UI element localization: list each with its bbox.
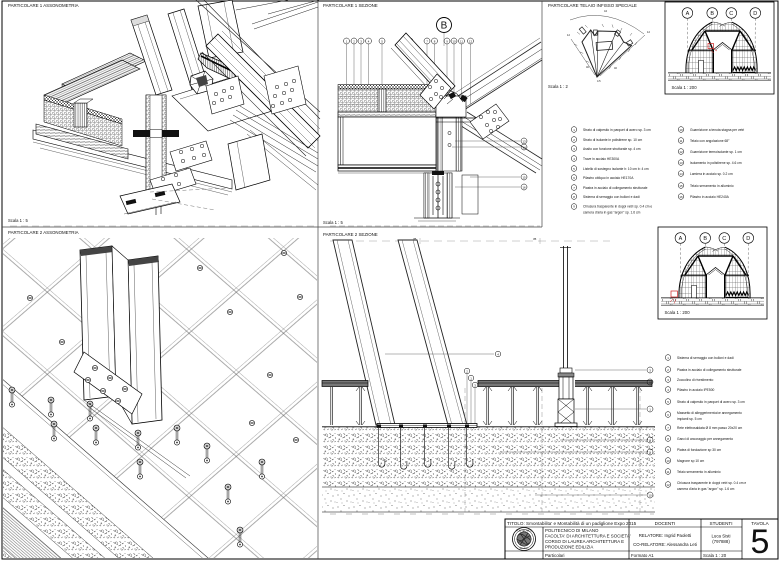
svg-text:12: 12: [469, 39, 473, 43]
svg-text:Scala 1 : 20: Scala 1 : 20: [703, 553, 727, 558]
svg-text:Chiusura trasparente in doppi: Chiusura trasparente in doppi vetri sp. …: [677, 481, 746, 485]
svg-text:Telaio serramento in alluminio: Telaio serramento in alluminio: [677, 470, 721, 474]
svg-text:DOCENTI: DOCENTI: [655, 521, 676, 526]
svg-text:10: 10: [648, 493, 652, 497]
svg-text:Formato A1: Formato A1: [631, 553, 654, 558]
svg-text:Scala 1 : 2: Scala 1 : 2: [548, 84, 568, 89]
svg-text:11: 11: [666, 470, 669, 474]
svg-text:PARTICOLARE 1 SEZIONE: PARTICOLARE 1 SEZIONE: [323, 3, 378, 8]
svg-text:10: 10: [666, 459, 670, 463]
svg-text:Platea di fondazione sp 30 cm: Platea di fondazione sp 30 cm: [677, 448, 721, 452]
svg-text:12: 12: [666, 483, 670, 487]
svg-text:STUDENTI: STUDENTI: [710, 521, 733, 526]
svg-text:Guarnizione a tenuta stagna pe: Guarnizione a tenuta stagna per vetri: [690, 128, 745, 132]
svg-text:Trave in acciaio HE300A: Trave in acciaio HE300A: [583, 157, 620, 161]
svg-text:Guarnizione termoisolante sp.: Guarnizione termoisolante sp. 1 cm: [690, 150, 742, 154]
svg-text:35: 35: [533, 237, 537, 241]
svg-text:camera d'aria in gas "argon" s: camera d'aria in gas "argon" sp. 1.6 cm: [583, 211, 641, 215]
svg-text:16: 16: [522, 185, 526, 189]
svg-text:PARTICOLARE TELAIO INFISSO SPE: PARTICOLARE TELAIO INFISSO SPECIALE: [548, 3, 637, 8]
svg-text:Piastra in acciaio di collegam: Piastra in acciaio di collegamento strut…: [583, 186, 648, 190]
svg-text:Scala 1 : 5: Scala 1 : 5: [323, 220, 343, 225]
svg-text:Massetto di alleggerimento/ce: Massetto di alleggerimento/ce annegament…: [677, 411, 742, 415]
svg-text:PARTICOLARE 2 SEZIONE: PARTICOLARE 2 SEZIONE: [323, 232, 378, 237]
svg-text:12: 12: [679, 150, 683, 154]
svg-text:16: 16: [679, 195, 683, 199]
svg-text:Chiusura trasparente in doppi: Chiusura trasparente in doppi vetri sp. …: [583, 205, 652, 209]
svg-text:PARTICOLARE 2 ASSONOMETRIA: PARTICOLARE 2 ASSONOMETRIA: [8, 230, 79, 235]
svg-text:Scala 1 : 5: Scala 1 : 5: [8, 218, 28, 223]
svg-text:FACOLTA' DI ARCHITETTURA E SOC: FACOLTA' DI ARCHITETTURA E SOCIETA': [545, 534, 631, 539]
svg-text:Lamiera in acciaio sp. 0.2 cm: Lamiera in acciaio sp. 0.2 cm: [690, 172, 733, 176]
svg-text:Sistema di serraggio con bullo: Sistema di serraggio con bulloni e dadi: [583, 195, 640, 199]
svg-text:Listello di sostegno isolante: Listello di sostegno isolante h: 10 cm b…: [583, 167, 649, 171]
svg-text:CORSO DI LAUREA ARCHITETTURA E: CORSO DI LAUREA ARCHITETTURA E: [545, 539, 624, 544]
svg-text:Assito con funzione struttural: Assito con funzione strutturale sp. 4 cm: [583, 147, 641, 151]
svg-text:(797888): (797888): [712, 539, 730, 544]
svg-text:14: 14: [679, 172, 683, 176]
svg-text:Pilastro in acciaio HE240A: Pilastro in acciaio HE240A: [690, 195, 730, 199]
svg-text:10: 10: [679, 128, 683, 132]
svg-text:CO-RELATORE: Alessandra Leti: CO-RELATORE: Alessandra Leti: [633, 542, 697, 547]
svg-text:impianti sp. 5 cm: impianti sp. 5 cm: [677, 417, 702, 421]
svg-text:PARTICOLARE 1 ASSONOMETRIA: PARTICOLARE 1 ASSONOMETRIA: [8, 3, 79, 8]
svg-text:Zoccolino di rivestimento: Zoccolino di rivestimento: [677, 378, 713, 382]
svg-text:14: 14: [522, 145, 526, 149]
svg-text:Piastra in acciaio di collegam: Piastra in acciaio di collegamento strut…: [677, 368, 742, 372]
svg-text:POLITECNICO DI MILANO: POLITECNICO DI MILANO: [545, 528, 599, 533]
svg-text:15: 15: [522, 175, 526, 179]
svg-text:Magrone sp 10 cm: Magrone sp 10 cm: [677, 459, 705, 463]
svg-text:Telaio serramento in alluminio: Telaio serramento in alluminio: [690, 184, 734, 188]
svg-text:Ganci di ancoraggio per annega: Ganci di ancoraggio per annegamento: [677, 437, 733, 441]
svg-text:MILANO: MILANO: [520, 547, 529, 550]
svg-text:Pilastro obliquo in acciaio HE: Pilastro obliquo in acciaio HE170A: [583, 176, 634, 180]
svg-text:13: 13: [679, 161, 683, 165]
svg-text:Sistema di serraggio con bullo: Sistema di serraggio con bulloni e dadi: [677, 356, 734, 360]
svg-text:TITOLO: Smontabilita' e Montab: TITOLO: Smontabilita' e Montabilità di u…: [507, 521, 637, 526]
svg-text:PRODUZIONE EDILIZIA: PRODUZIONE EDILIZIA: [545, 545, 593, 550]
svg-text:Luca Sisti: Luca Sisti: [711, 534, 730, 539]
svg-text:POLITECNICO: POLITECNICO: [516, 530, 532, 533]
svg-text:B: B: [441, 21, 448, 32]
svg-text:13: 13: [522, 139, 526, 143]
svg-text:11: 11: [679, 139, 682, 143]
svg-text:Strato di isolante in polistir: Strato di isolante in polistirene sp. 10…: [583, 138, 642, 142]
svg-text:Isolamento in polistirene sp.: Isolamento in polistirene sp. 4.6 cm: [690, 161, 742, 165]
svg-text:15: 15: [679, 184, 683, 188]
svg-text:Pilastro in acciaio IPE500: Pilastro in acciaio IPE500: [677, 388, 715, 392]
svg-text:Strato di calpestio in parquet: Strato di calpestio in parquet di acero …: [583, 128, 651, 132]
svg-text:10: 10: [452, 39, 456, 43]
svg-text:5: 5: [751, 523, 770, 561]
svg-text:Telaio con angolazione 68°: Telaio con angolazione 68°: [690, 139, 730, 143]
svg-text:Particolari: Particolari: [545, 553, 565, 558]
svg-text:camera d'aria in gas "argon" s: camera d'aria in gas "argon" sp. 1.6 cm: [677, 487, 735, 491]
svg-text:11: 11: [460, 39, 463, 43]
svg-text:RELATORE: Ingrid Paoletti: RELATORE: Ingrid Paoletti: [639, 533, 692, 538]
svg-text:Strato di calpestio in parquet: Strato di calpestio in parquet di acero …: [677, 400, 745, 404]
svg-text:Rete elettrosaldata Ø 8 mm pas: Rete elettrosaldata Ø 8 mm passo 20x20 c…: [677, 426, 742, 430]
svg-text:4.5: 4.5: [597, 79, 601, 83]
